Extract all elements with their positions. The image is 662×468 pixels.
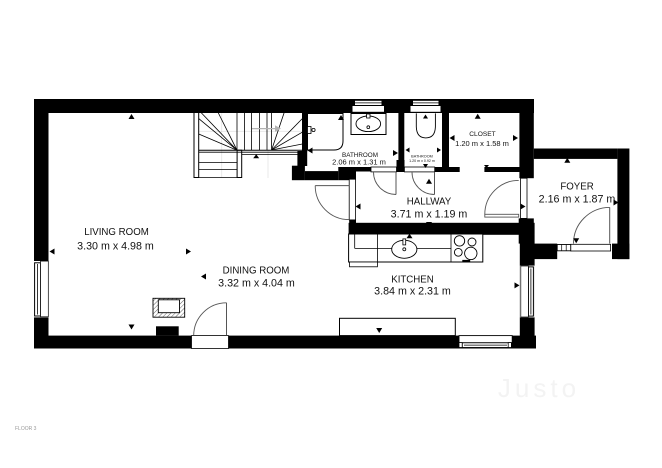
svg-text:3.30 m x 4.98 m: 3.30 m x 4.98 m (77, 241, 154, 253)
svg-text:HALLWAY: HALLWAY (407, 197, 452, 208)
svg-text:2.16 m x 1.87 m: 2.16 m x 1.87 m (539, 193, 616, 205)
svg-text:3.71 m x 1.19 m: 3.71 m x 1.19 m (391, 209, 468, 221)
svg-text:1.20 m x 1.58 m: 1.20 m x 1.58 m (455, 139, 509, 148)
svg-text:FOYER: FOYER (560, 182, 593, 193)
svg-text:3.84 m x 2.31 m: 3.84 m x 2.31 m (374, 286, 451, 298)
svg-text:FLOOR 3: FLOOR 3 (15, 426, 37, 432)
svg-text:LIVING ROOM: LIVING ROOM (84, 227, 149, 238)
svg-text:KITCHEN: KITCHEN (391, 275, 434, 286)
svg-text:DINING ROOM: DINING ROOM (223, 266, 290, 277)
svg-text:CLOSET: CLOSET (469, 131, 495, 138)
svg-text:3.32 m x 4.04 m: 3.32 m x 4.04 m (218, 278, 295, 290)
svg-text:2.06 m x 1.31 m: 2.06 m x 1.31 m (332, 157, 386, 166)
svg-text:1.20 m x 0.92 m: 1.20 m x 0.92 m (409, 159, 435, 163)
svg-text:Justo: Justo (498, 373, 580, 403)
